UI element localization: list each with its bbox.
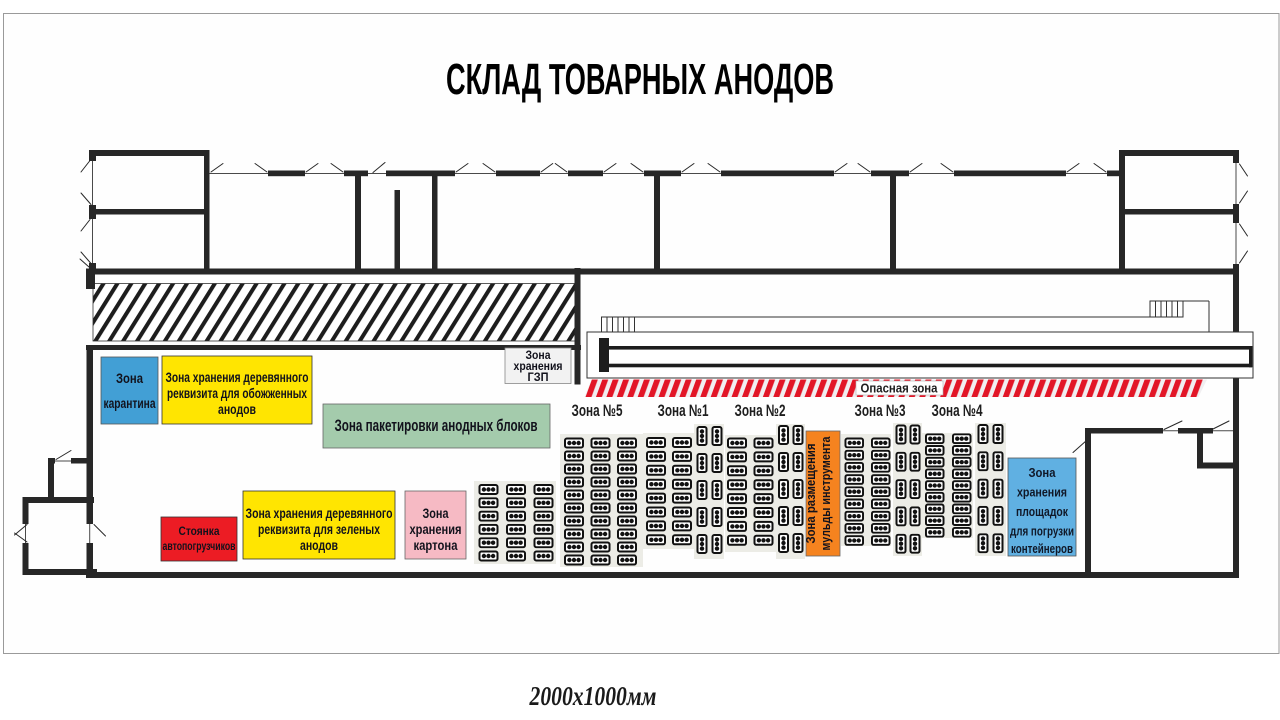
- svg-text:Зона размещения: Зона размещения: [804, 444, 818, 544]
- svg-text:карантина: карантина: [104, 396, 156, 411]
- svg-text:Стоянка: Стоянка: [179, 526, 221, 538]
- svg-text:Зона хранения деревянного: Зона хранения деревянного: [166, 369, 309, 385]
- svg-text:мульды инструмента: мульды инструмента: [819, 436, 833, 551]
- svg-text:Зона: Зона: [423, 506, 449, 521]
- svg-text:Зона №2: Зона №2: [735, 402, 786, 420]
- svg-text:хранения: хранения: [410, 522, 462, 537]
- svg-text:картона: картона: [414, 538, 458, 553]
- svg-text:Зона: Зона: [116, 371, 143, 386]
- svg-text:Зона хранения деревянного: Зона хранения деревянного: [246, 505, 393, 521]
- svg-text:Зона пакетировки анодных блоко: Зона пакетировки анодных блоков: [335, 416, 538, 435]
- svg-text:Зона №5: Зона №5: [572, 402, 623, 420]
- svg-text:анодов: анодов: [218, 401, 256, 417]
- svg-text:хранения: хранения: [1017, 485, 1067, 500]
- svg-text:площадок: площадок: [1016, 504, 1068, 519]
- svg-text:Зона №3: Зона №3: [855, 402, 906, 420]
- svg-text:Опасная зона: Опасная зона: [861, 381, 939, 396]
- svg-text:анодов: анодов: [300, 537, 338, 553]
- svg-text:реквизита для зеленых: реквизита для зеленых: [258, 521, 380, 537]
- svg-text:СКЛАД ТОВАРНЫХ АНОДОВ: СКЛАД ТОВАРНЫХ АНОДОВ: [446, 55, 834, 104]
- svg-text:для погрузки: для погрузки: [1010, 524, 1074, 539]
- svg-text:Зона: Зона: [1029, 465, 1057, 480]
- svg-text:Зона №1: Зона №1: [658, 402, 709, 420]
- svg-text:реквизита для обожженных: реквизита для обожженных: [167, 385, 307, 401]
- svg-text:ГЗП: ГЗП: [528, 370, 549, 384]
- svg-text:автопогрузчиков: автопогрузчиков: [163, 541, 236, 553]
- svg-text:2000x1000мм: 2000x1000мм: [529, 681, 657, 711]
- svg-text:Зона №4: Зона №4: [932, 402, 984, 420]
- svg-text:контейнеров: контейнеров: [1011, 541, 1073, 556]
